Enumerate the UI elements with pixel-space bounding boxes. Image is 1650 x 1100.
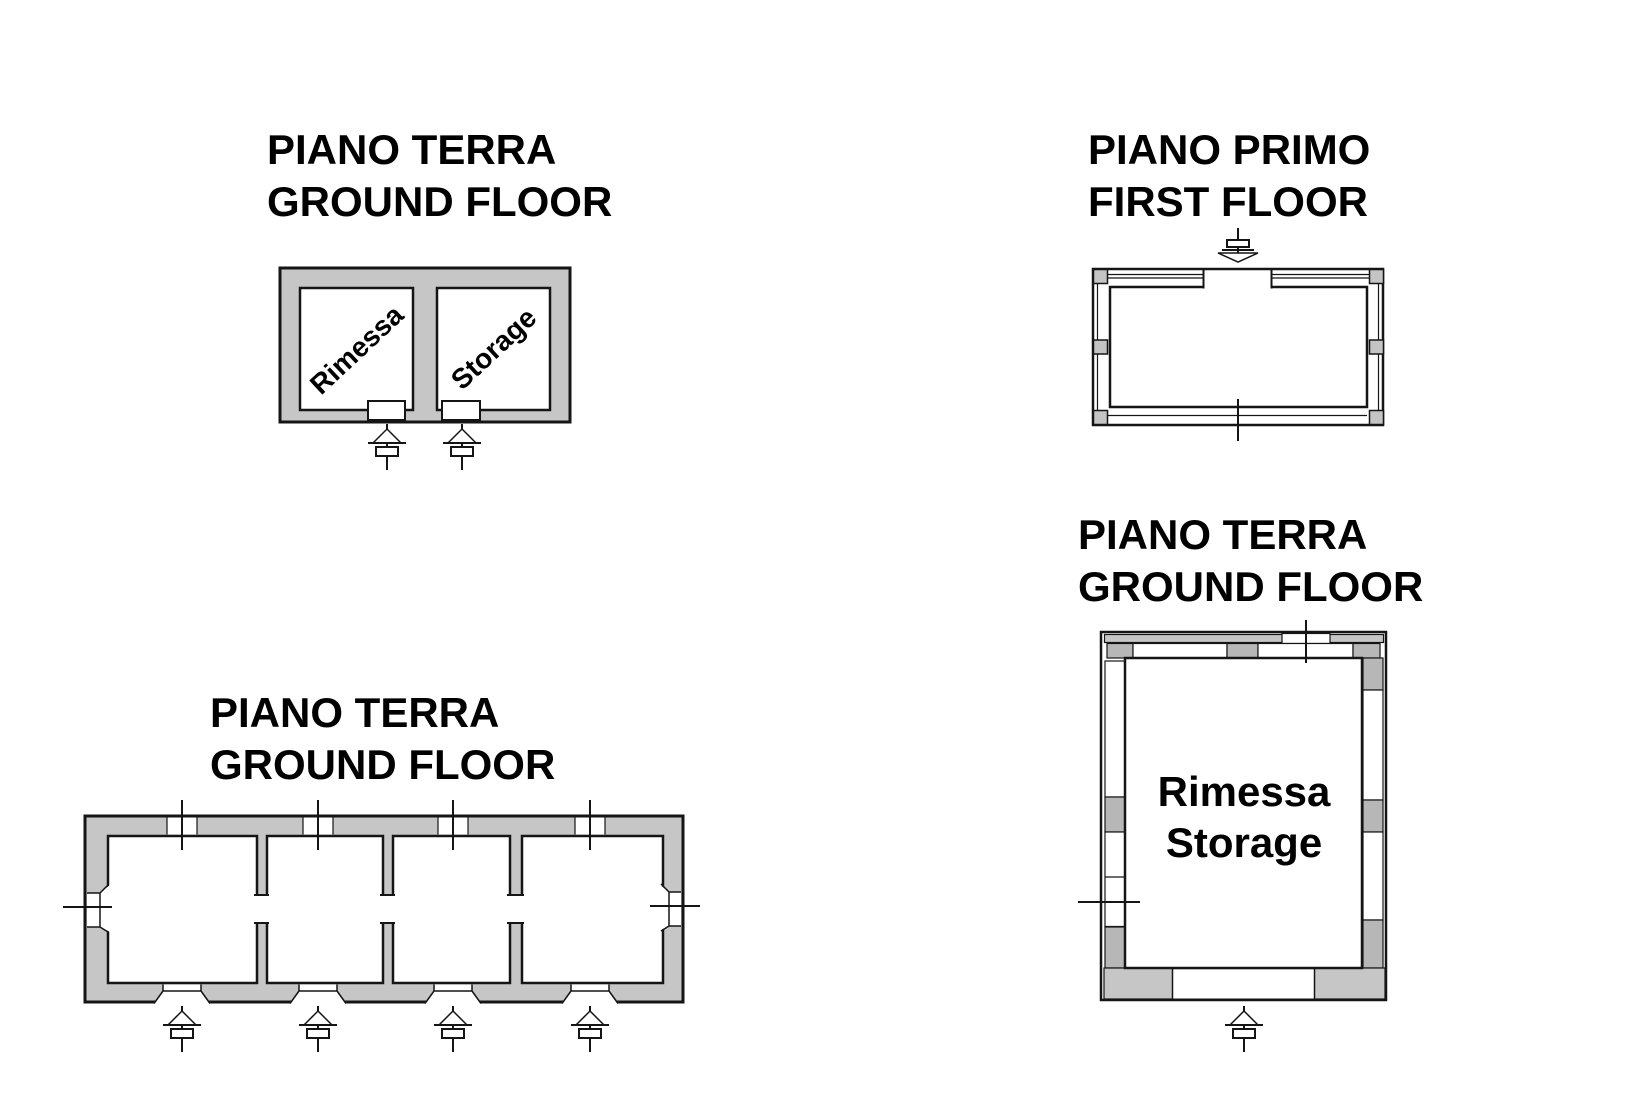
floorplan-bottom-left <box>50 785 715 1060</box>
entrance-arrow-icon <box>163 1006 201 1052</box>
door-opening <box>1173 970 1314 999</box>
entrance-arrow-icon <box>299 1006 337 1052</box>
room-label-line1: Rimessa <box>1158 766 1331 817</box>
room-label-line2: Storage <box>1158 817 1331 868</box>
plan-title-line1: PIANO TERRA <box>1078 509 1423 561</box>
plan-title-line1: PIANO PRIMO <box>1088 124 1370 176</box>
floorplan-sheet: PIANO TERRA GROUND FLOOR Rimessa Storage… <box>0 0 1650 1100</box>
plan-title-line1: PIANO TERRA <box>267 124 612 176</box>
entrance-arrow-icon <box>1225 1006 1263 1052</box>
plan-title-line2: GROUND FLOOR <box>267 176 612 228</box>
plan-title-line1: PIANO TERRA <box>210 687 555 739</box>
bottom-wall-door <box>1104 968 1385 1000</box>
plan-title-bottom-right: PIANO TERRA GROUND FLOOR <box>1078 509 1423 613</box>
entrance-arrow-icon <box>434 1006 472 1052</box>
left-wall-windows <box>1105 661 1125 968</box>
door-opening <box>1205 271 1271 289</box>
plan-title-line2: GROUND FLOOR <box>210 739 555 791</box>
entrance-arrow-icon <box>571 1006 609 1052</box>
top-wall-windows <box>1105 634 1384 659</box>
plan-title-top-left: PIANO TERRA GROUND FLOOR <box>267 124 612 228</box>
door-opening <box>442 401 480 420</box>
door-opening <box>368 401 405 420</box>
room <box>1110 287 1367 407</box>
floorplan-top-left <box>250 255 590 485</box>
plan-title-bottom-left: PIANO TERRA GROUND FLOOR <box>210 687 555 791</box>
floorplan-top-right <box>1080 210 1400 455</box>
entrance-arrow-icon <box>368 424 406 470</box>
entrance-arrow-icon <box>1218 228 1258 262</box>
right-wall-windows <box>1363 658 1383 968</box>
room-label-rimessa-storage: Rimessa Storage <box>1158 766 1331 868</box>
entrance-arrow-icon <box>443 424 481 470</box>
